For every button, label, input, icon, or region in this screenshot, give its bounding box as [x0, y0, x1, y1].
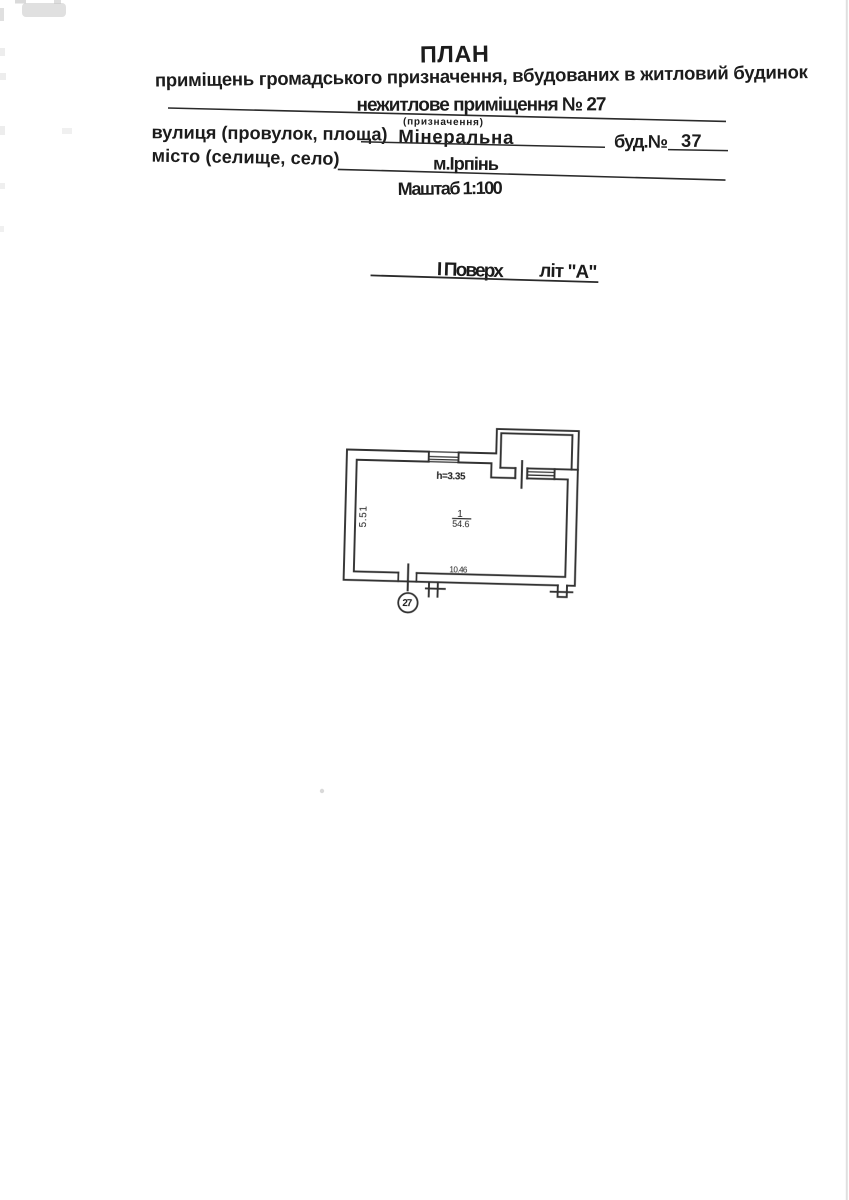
svg-text:h=3.35: h=3.35 [436, 471, 466, 483]
svg-text:м.Ірпінь: м.Ірпінь [433, 154, 499, 175]
svg-text:місто (селище, село): місто (селище, село) [151, 146, 339, 169]
svg-text:5.51: 5.51 [358, 505, 370, 527]
svg-text:нежитлове приміщення № 27: нежитлове приміщення № 27 [356, 94, 606, 115]
svg-text:вулиця (провулок, площа): вулиця (провулок, площа) [151, 122, 387, 144]
svg-text:54.6: 54.6 [452, 519, 470, 529]
svg-text:Маштаб 1:100: Маштаб 1:100 [398, 178, 503, 199]
svg-text:10.46: 10.46 [449, 565, 468, 574]
svg-text:буд.№: буд.№ [614, 131, 668, 151]
svg-text:37: 37 [681, 131, 702, 151]
svg-text:ПЛАН: ПЛАН [420, 41, 489, 68]
svg-text:27: 27 [402, 598, 413, 609]
